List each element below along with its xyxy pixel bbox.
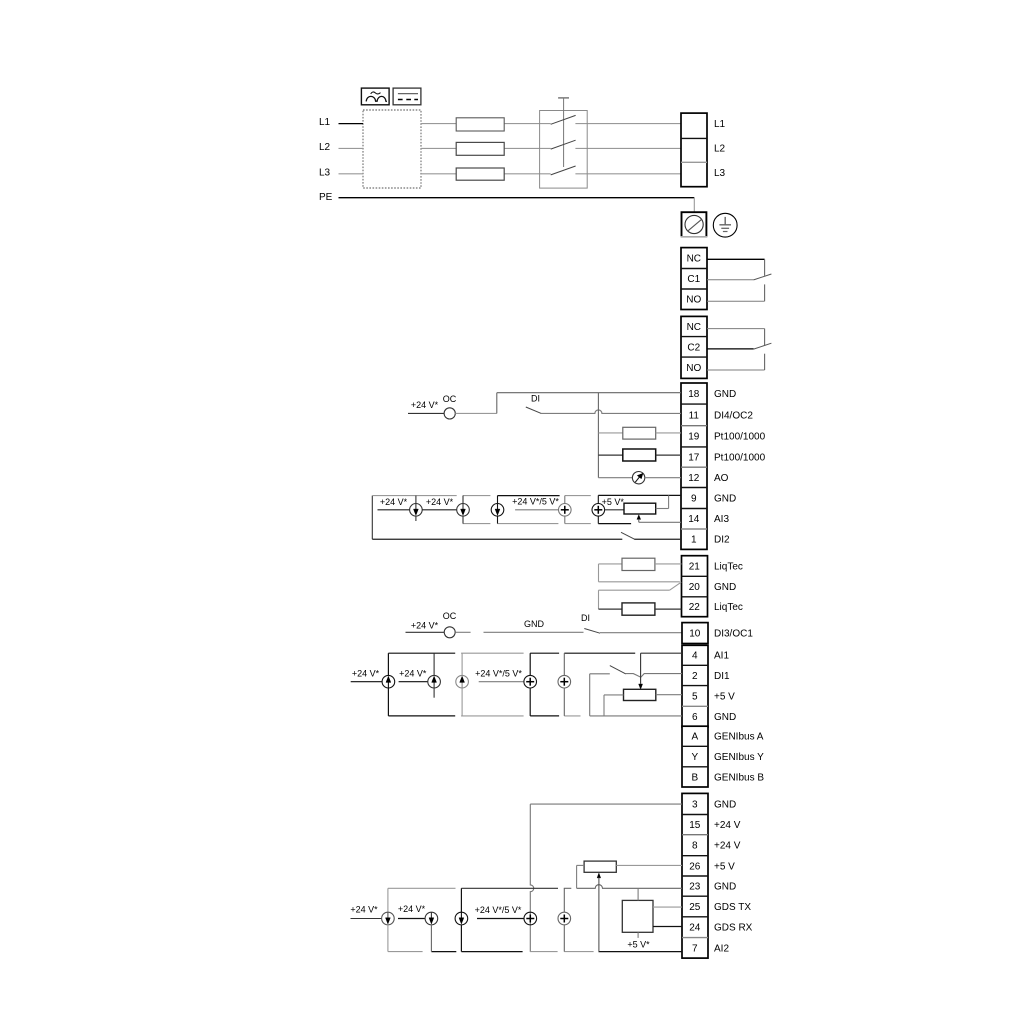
svg-text:GDS RX: GDS RX: [714, 923, 753, 934]
svg-text:+5 V*: +5 V*: [602, 497, 625, 507]
svg-text:GENIbus Y: GENIbus Y: [714, 752, 764, 763]
svg-text:DI1: DI1: [714, 671, 730, 682]
svg-text:DI4/OC2: DI4/OC2: [714, 410, 753, 421]
svg-text:C1: C1: [687, 274, 700, 285]
svg-text:7: 7: [692, 943, 698, 954]
svg-text:25: 25: [689, 902, 701, 913]
svg-text:NO: NO: [686, 363, 701, 374]
svg-text:23: 23: [689, 882, 701, 893]
svg-text:Pt100/1000: Pt100/1000: [714, 432, 766, 443]
svg-text:GND: GND: [714, 582, 736, 593]
svg-text:AI1: AI1: [714, 651, 729, 662]
svg-text:A: A: [691, 732, 698, 743]
svg-text:15: 15: [689, 820, 701, 831]
svg-text:GDS TX: GDS TX: [714, 902, 751, 913]
svg-text:+24 V*/5 V*: +24 V*/5 V*: [475, 669, 522, 679]
svg-text:+24 V*: +24 V*: [352, 669, 380, 679]
svg-text:Pt100/1000: Pt100/1000: [714, 452, 766, 463]
svg-text:+24 V*: +24 V*: [411, 400, 439, 410]
svg-text:+5 V: +5 V: [714, 691, 735, 702]
svg-text:AO: AO: [714, 473, 729, 484]
svg-text:GENIbus B: GENIbus B: [714, 772, 764, 783]
svg-text:GND: GND: [714, 799, 736, 810]
svg-text:NO: NO: [686, 295, 701, 306]
svg-text:21: 21: [689, 561, 701, 572]
svg-text:GENIbus A: GENIbus A: [714, 732, 764, 743]
svg-text:4: 4: [692, 651, 698, 662]
svg-text:GND: GND: [714, 712, 736, 723]
svg-text:GND: GND: [714, 493, 736, 504]
svg-text:L2: L2: [319, 142, 331, 153]
svg-text:+5 V: +5 V: [714, 861, 735, 872]
svg-text:DI3/OC1: DI3/OC1: [714, 629, 753, 640]
svg-text:Y: Y: [691, 752, 698, 763]
svg-text:+5 V*: +5 V*: [627, 940, 650, 950]
svg-text:2: 2: [692, 671, 698, 682]
svg-text:+24 V: +24 V: [714, 841, 741, 852]
svg-text:GND: GND: [714, 389, 736, 400]
svg-text:GND: GND: [524, 619, 545, 629]
svg-text:22: 22: [689, 602, 701, 613]
svg-text:12: 12: [688, 473, 700, 484]
svg-text:9: 9: [691, 493, 697, 504]
svg-text:+24 V*: +24 V*: [411, 621, 439, 631]
svg-text:24: 24: [689, 923, 701, 934]
svg-text:8: 8: [692, 841, 698, 852]
svg-text:10: 10: [689, 628, 701, 639]
svg-text:NC: NC: [687, 322, 701, 333]
svg-text:+24 V*: +24 V*: [426, 497, 454, 507]
svg-text:AI3: AI3: [714, 514, 729, 525]
svg-text:+24 V*/5 V*: +24 V*/5 V*: [475, 905, 522, 915]
svg-text:11: 11: [689, 410, 700, 421]
svg-text:L2: L2: [714, 144, 726, 155]
svg-text:PE: PE: [319, 192, 333, 203]
svg-text:18: 18: [688, 389, 700, 400]
svg-text:+24 V*: +24 V*: [399, 669, 427, 679]
svg-text:LiqTec: LiqTec: [714, 602, 743, 613]
svg-text:+24 V*: +24 V*: [350, 905, 378, 915]
svg-text:DI: DI: [581, 613, 590, 623]
svg-text:17: 17: [688, 452, 700, 463]
svg-text:5: 5: [692, 691, 698, 702]
svg-text:OC: OC: [443, 611, 457, 621]
svg-text:1: 1: [691, 535, 697, 546]
svg-text:GND: GND: [714, 882, 736, 893]
svg-text:+24 V: +24 V: [714, 820, 741, 831]
svg-text:6: 6: [692, 712, 698, 723]
svg-text:C2: C2: [687, 342, 700, 353]
svg-text:26: 26: [689, 861, 701, 872]
svg-text:NC: NC: [687, 253, 701, 264]
svg-text:+24 V*: +24 V*: [398, 904, 426, 914]
svg-text:14: 14: [688, 514, 700, 525]
svg-text:+24 V*: +24 V*: [380, 497, 408, 507]
svg-text:L1: L1: [714, 119, 726, 130]
svg-text:20: 20: [689, 582, 701, 593]
svg-text:DI: DI: [531, 394, 540, 404]
svg-text:L3: L3: [319, 168, 331, 179]
svg-text:L1: L1: [319, 117, 331, 128]
svg-text:OC: OC: [443, 394, 457, 404]
svg-text:+24 V*/5 V*: +24 V*/5 V*: [512, 497, 559, 507]
svg-text:LiqTec: LiqTec: [714, 561, 743, 572]
svg-text:DI2: DI2: [714, 535, 730, 546]
svg-text:B: B: [691, 772, 698, 783]
svg-text:AI2: AI2: [714, 943, 729, 954]
svg-text:3: 3: [692, 799, 698, 810]
svg-text:19: 19: [688, 432, 700, 443]
svg-text:L3: L3: [714, 168, 726, 179]
